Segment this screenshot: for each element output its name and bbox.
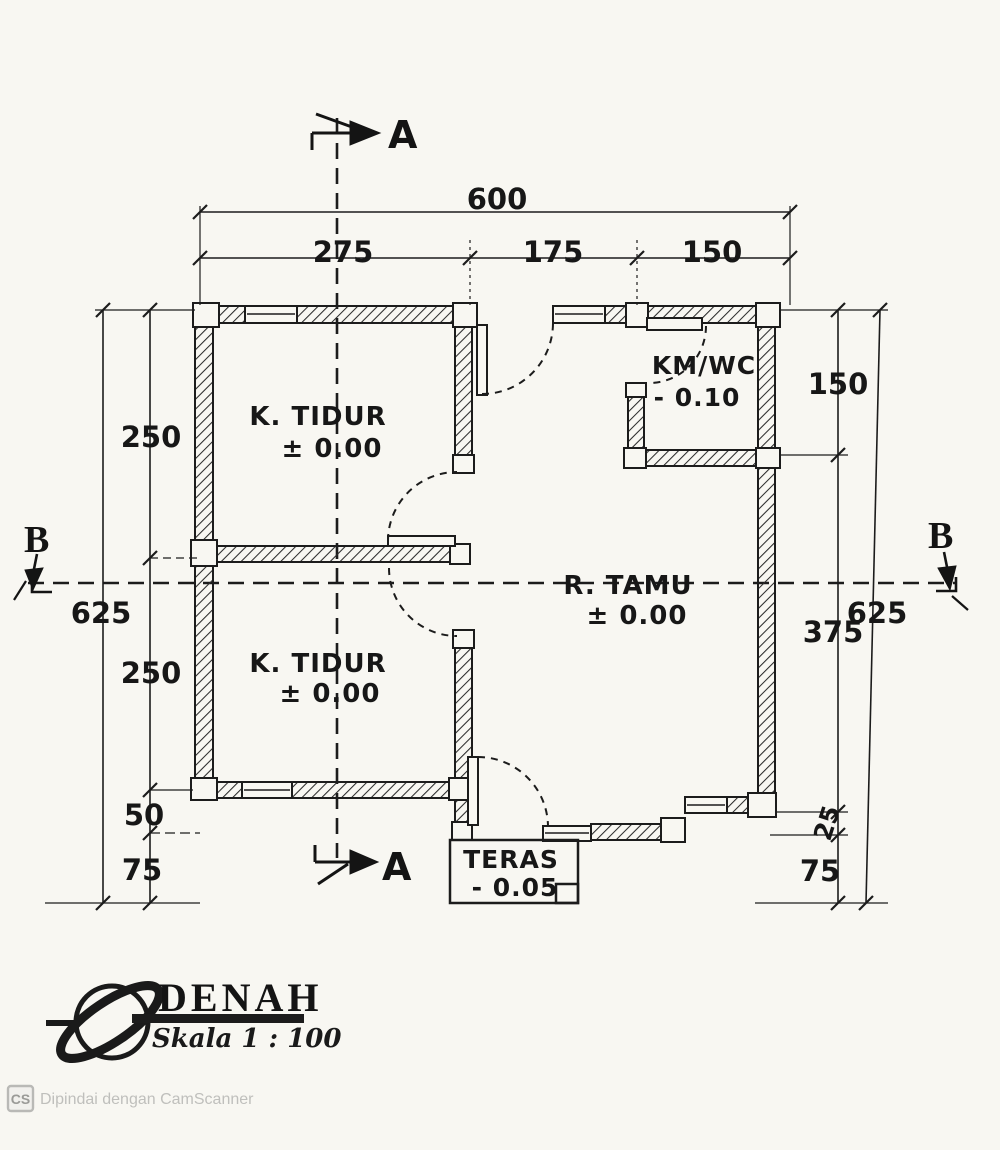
door-leaf: [388, 536, 455, 546]
wall-segment: [758, 468, 775, 793]
door-leaf: [477, 325, 487, 395]
wall-end-cap: [626, 383, 646, 397]
section-marker-b-right: [936, 552, 968, 610]
dim-left-total: 625: [71, 596, 132, 630]
cs-watermark-text: Dipindai dengan CamScanner: [40, 1091, 254, 1108]
door-swing-arc: [478, 757, 548, 827]
title-block: DENAH Skala 1 : 100: [46, 973, 341, 1071]
door-leaf: [468, 757, 478, 825]
room-level-bedroom-top: ± 0.00: [282, 434, 383, 464]
wall-segment: [297, 306, 453, 323]
section-cut-lines: [28, 118, 955, 858]
column: [626, 303, 648, 327]
section-label-b-right: B: [928, 515, 953, 557]
column: [191, 540, 217, 566]
section-markers: A A B B: [14, 113, 968, 889]
wall-segment: [219, 306, 245, 323]
dim-top-total: 600: [467, 182, 528, 216]
room-label-living: R. TAMU: [563, 571, 692, 601]
dim-top-c: 150: [682, 235, 743, 269]
cs-badge-text: CS: [11, 1091, 30, 1107]
wall-segment: [195, 566, 213, 778]
column: [453, 303, 477, 327]
dim-right-a: 150: [808, 367, 869, 401]
floor-plan-drawing: 600 275 175 150 625 250 250 50 75 150 37…: [0, 0, 1000, 1150]
dim-top-a: 275: [313, 235, 374, 269]
terrace-step: [556, 884, 578, 903]
dim-right-d: 75: [800, 854, 840, 888]
room-level-bathroom: - 0.10: [654, 383, 741, 412]
wall-end-cap: [453, 455, 474, 473]
section-label-a-bottom: A: [382, 845, 412, 889]
dim-right-total: 625: [847, 596, 908, 630]
room-level-bedroom-bottom: ± 0.00: [280, 679, 381, 709]
column: [756, 448, 780, 468]
room-label-bedroom-top: K. TIDUR: [249, 402, 386, 432]
room-label-bedroom-bottom: K. TIDUR: [249, 649, 386, 679]
wall-segment: [605, 306, 626, 323]
room-level-living: ± 0.00: [587, 601, 688, 631]
dim-left-d: 75: [122, 853, 162, 887]
wall-segment: [213, 546, 450, 562]
dim-left-a: 250: [121, 420, 182, 454]
wall-segment: [646, 450, 756, 466]
column: [193, 303, 219, 327]
wall-segment: [292, 782, 450, 798]
wall-segment: [195, 327, 213, 540]
column: [191, 778, 217, 800]
drawing-scale: Skala 1 : 100: [152, 1024, 341, 1054]
door-leaf: [647, 318, 702, 330]
dim-left-c: 50: [124, 798, 164, 832]
wall-segment: [727, 797, 748, 813]
wall-segment: [455, 327, 472, 455]
room-label-terrace: TERAS: [463, 845, 559, 874]
column: [624, 448, 646, 468]
door-swing-arc: [482, 323, 553, 394]
column: [748, 793, 776, 817]
wall-segment: [591, 824, 661, 840]
door-swing-arc: [389, 568, 457, 636]
section-label-a-top: A: [388, 113, 418, 157]
column: [661, 818, 685, 842]
column: [756, 303, 780, 327]
scanned-floor-plan-page: 600 275 175 150 625 250 250 50 75 150 37…: [0, 0, 1000, 1150]
wall-segment: [217, 782, 242, 798]
wall-segment: [758, 327, 775, 448]
wall-end-cap: [453, 630, 474, 648]
room-level-terrace: - 0.05: [472, 873, 559, 902]
drawing-title: DENAH: [158, 975, 322, 1020]
section-marker-a-top: [312, 114, 380, 150]
door-swing-arc: [388, 472, 457, 541]
dim-left-b: 250: [121, 656, 182, 690]
wall-segment: [628, 397, 644, 450]
section-marker-a-bottom: [315, 845, 378, 884]
camscanner-watermark: CS Dipindai dengan CamScanner: [8, 1086, 254, 1111]
room-label-bathroom: KM/WC: [652, 351, 756, 380]
dim-top-b: 175: [523, 235, 584, 269]
